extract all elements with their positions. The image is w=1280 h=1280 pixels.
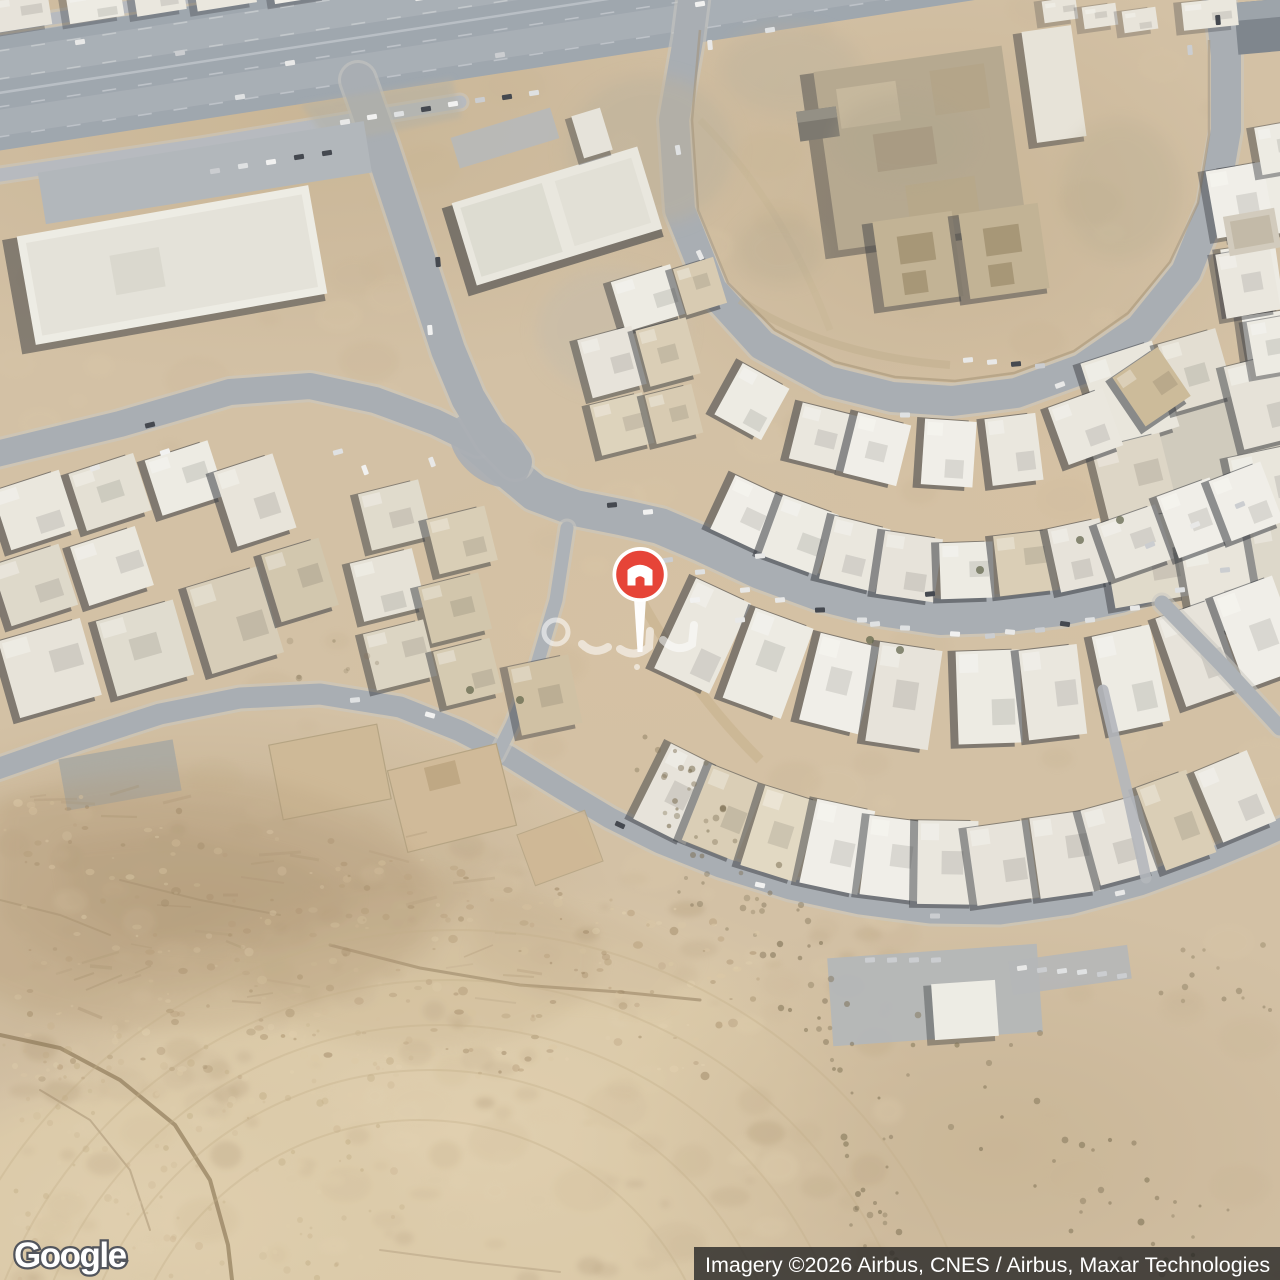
svg-text:Google: Google — [14, 1236, 127, 1275]
svg-text:Imagery ©2026 Airbus, CNES / A: Imagery ©2026 Airbus, CNES / Airbus, Max… — [705, 1253, 1270, 1277]
